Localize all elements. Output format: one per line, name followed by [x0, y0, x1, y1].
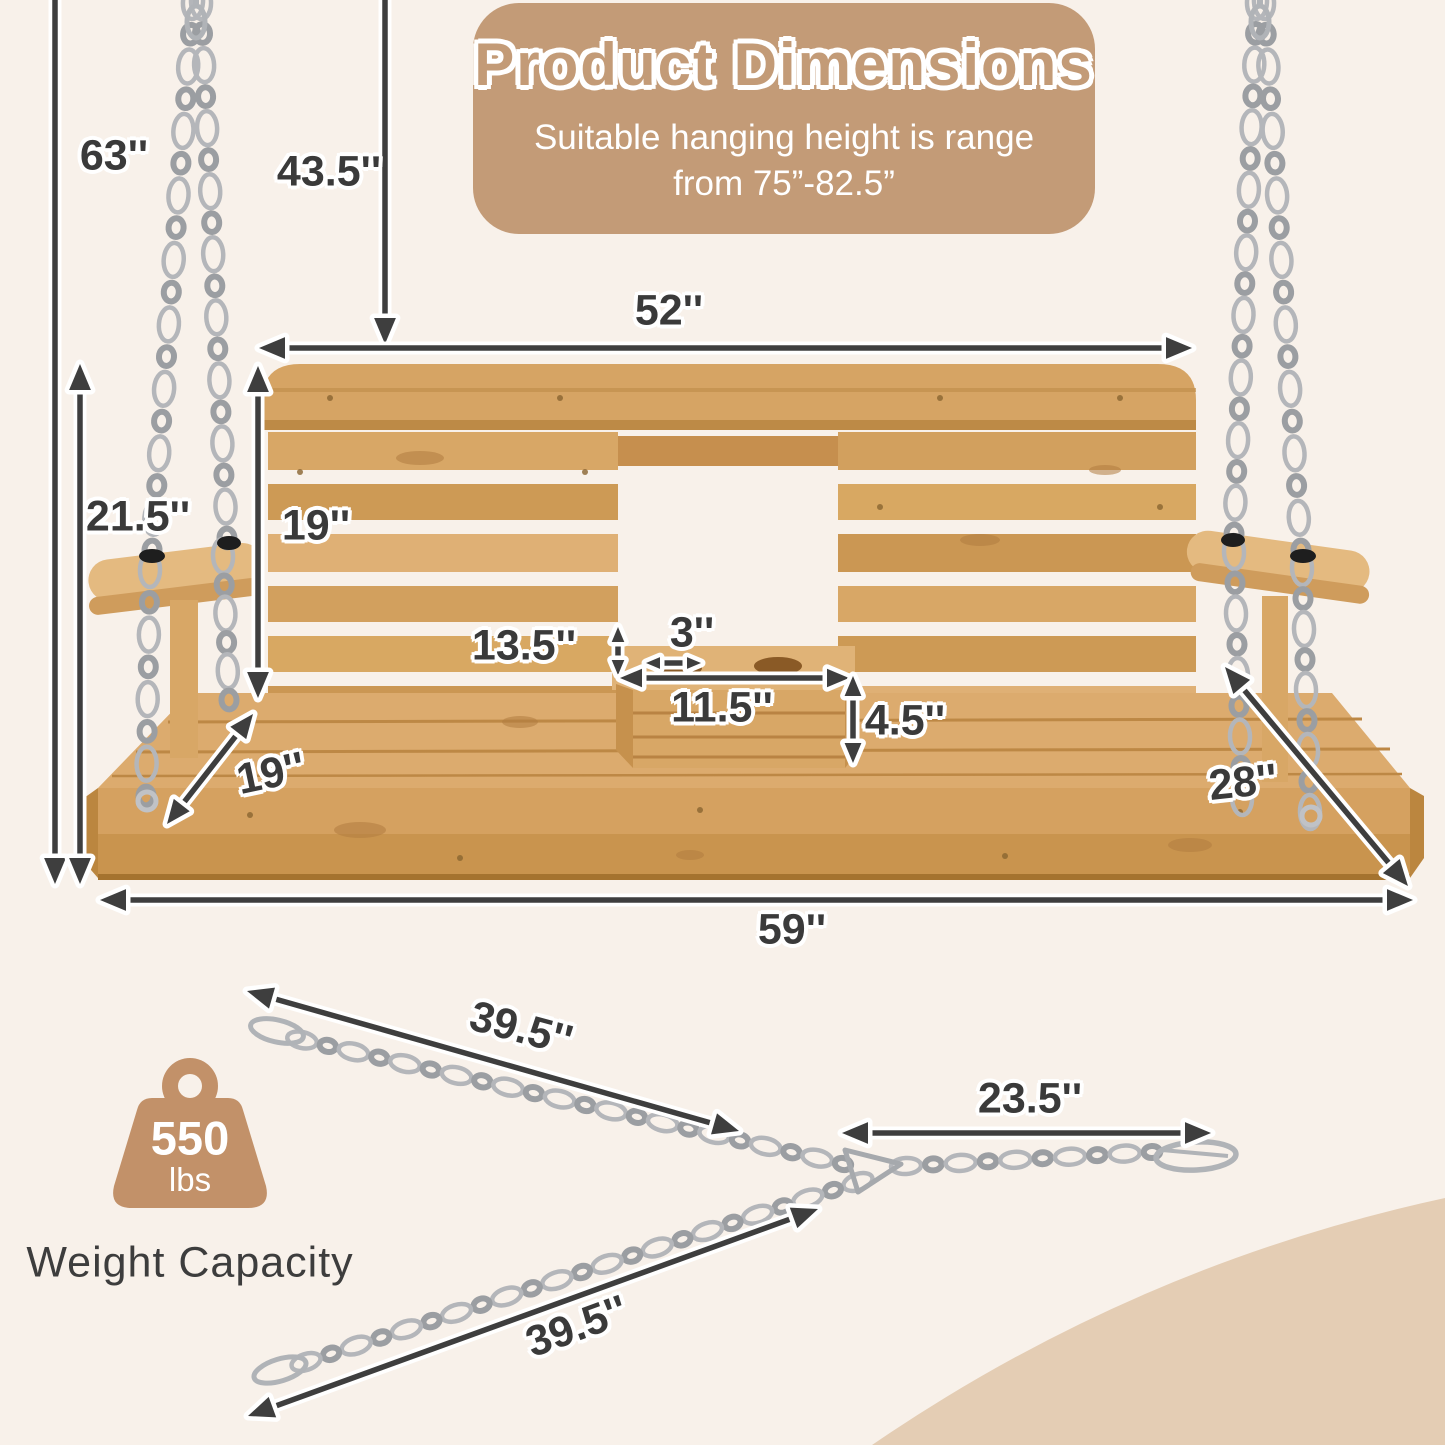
bottom-chain-snap-hook [251, 1352, 309, 1389]
weight-capacity-label: Weight Capacity [26, 1239, 353, 1288]
chain-junction-link [845, 1150, 901, 1192]
dim-overall-width-label: 59'' [758, 906, 826, 955]
subtitle-line-1: Suitable hanging height is range [534, 115, 1034, 161]
dim-cup-hole-label: 3'' [670, 609, 714, 658]
title-banner: Product Dimensions Suitable hanging heig… [473, 3, 1095, 234]
seat-front-board-bottom [98, 834, 1410, 880]
dim-backrest-width-label: 52'' [635, 287, 703, 336]
dim-total-height-label: 63'' [80, 132, 148, 181]
corner-accent-shape [872, 1198, 1445, 1445]
weight-unit: lbs [169, 1161, 211, 1199]
dim-chain-right-label: 23.5'' [978, 1075, 1082, 1124]
subtitle-line-2: from 75”-82.5” [534, 161, 1034, 207]
dim-overall-depth-label: 28'' [1206, 755, 1279, 811]
subtitle: Suitable hanging height is range from 75… [534, 115, 1034, 207]
dim-side-height-label: 21.5'' [86, 493, 190, 542]
dim-top-to-seat-label: 43.5'' [277, 148, 381, 197]
dim-backrest-height-label: 19'' [282, 502, 350, 551]
dim-console-to-seat-label: 13.5'' [472, 622, 576, 671]
console-back-bar [618, 436, 838, 466]
page-title: Product Dimensions [474, 30, 1093, 99]
dim-console-width-label: 11.5'' [671, 684, 773, 733]
weight-value: 550 [151, 1111, 229, 1166]
dim-console-depth-label: 4.5'' [865, 697, 945, 746]
product-dimensions-infographic: Product Dimensions Suitable hanging heig… [0, 0, 1445, 1445]
